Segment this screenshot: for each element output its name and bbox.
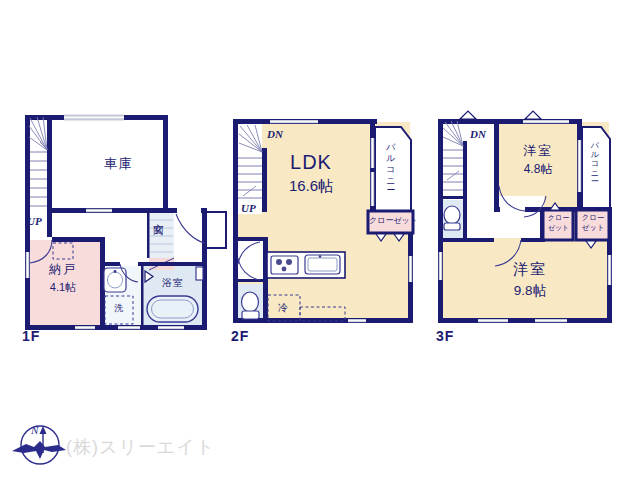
storage-label: 納戸: [30, 263, 96, 276]
storage-size-label: 4.1帖: [30, 281, 96, 293]
bath-counter: [196, 267, 203, 280]
front-door-arc: [176, 214, 205, 243]
closet-right-label-line2: ゼット: [578, 224, 608, 232]
toilet-icon: [444, 206, 460, 224]
garage-label: 車庫: [88, 157, 150, 171]
dn-label-3f: DN: [470, 128, 486, 140]
room-small-label: 洋室: [500, 144, 576, 158]
ldk-size-label: 16.6帖: [270, 178, 352, 195]
floor-1f: [25, 115, 226, 331]
balcony-label-3f: バルコニー: [589, 136, 598, 177]
washer-label: 洗: [114, 304, 123, 314]
roof-vent-marker: [460, 111, 476, 119]
company-name: (株)スリーエイト: [66, 438, 215, 458]
bath-label: 浴室: [152, 277, 194, 288]
entrance-label: 玄関: [153, 216, 164, 220]
hall-cell-2f: [237, 241, 263, 281]
entrance-porch: [205, 212, 226, 248]
room-small-size-label: 4.8帖: [500, 163, 576, 176]
room-large-size-label: 9.8帖: [478, 284, 582, 299]
north-label: N: [31, 424, 38, 436]
balcony-label-2f: バルコニー: [385, 136, 395, 187]
toilet-icon: [242, 292, 259, 312]
closet-right-label-line1: クロー: [578, 214, 608, 222]
floor-label-1f: 1F: [22, 329, 40, 344]
ldk-label: LDK: [270, 151, 352, 173]
up-label-1f: UP: [27, 215, 42, 227]
floorplan-drawing: [0, 0, 640, 480]
closet-label-2f: クローゼット: [369, 217, 412, 226]
closet-left-label-line1: クロー: [545, 214, 572, 222]
stairs-1f: [29, 117, 47, 206]
closet-left-label-line2: ゼット: [545, 224, 572, 232]
compass-icon: [12, 426, 66, 464]
dn-label-2f: DN: [267, 128, 283, 140]
room-large-label: 洋室: [478, 261, 582, 278]
fridge-label: 冷: [278, 302, 288, 313]
floorplan-page: 車庫 UP 玄関 納戸 4.1帖 洗 浴室 1F DN UP LDK 16.6帖…: [0, 0, 640, 480]
up-label-2f: UP: [241, 202, 256, 214]
roof-vent-marker: [525, 111, 541, 119]
floor-label-3f: 3F: [436, 329, 454, 344]
floor-label-2f: 2F: [231, 329, 249, 344]
